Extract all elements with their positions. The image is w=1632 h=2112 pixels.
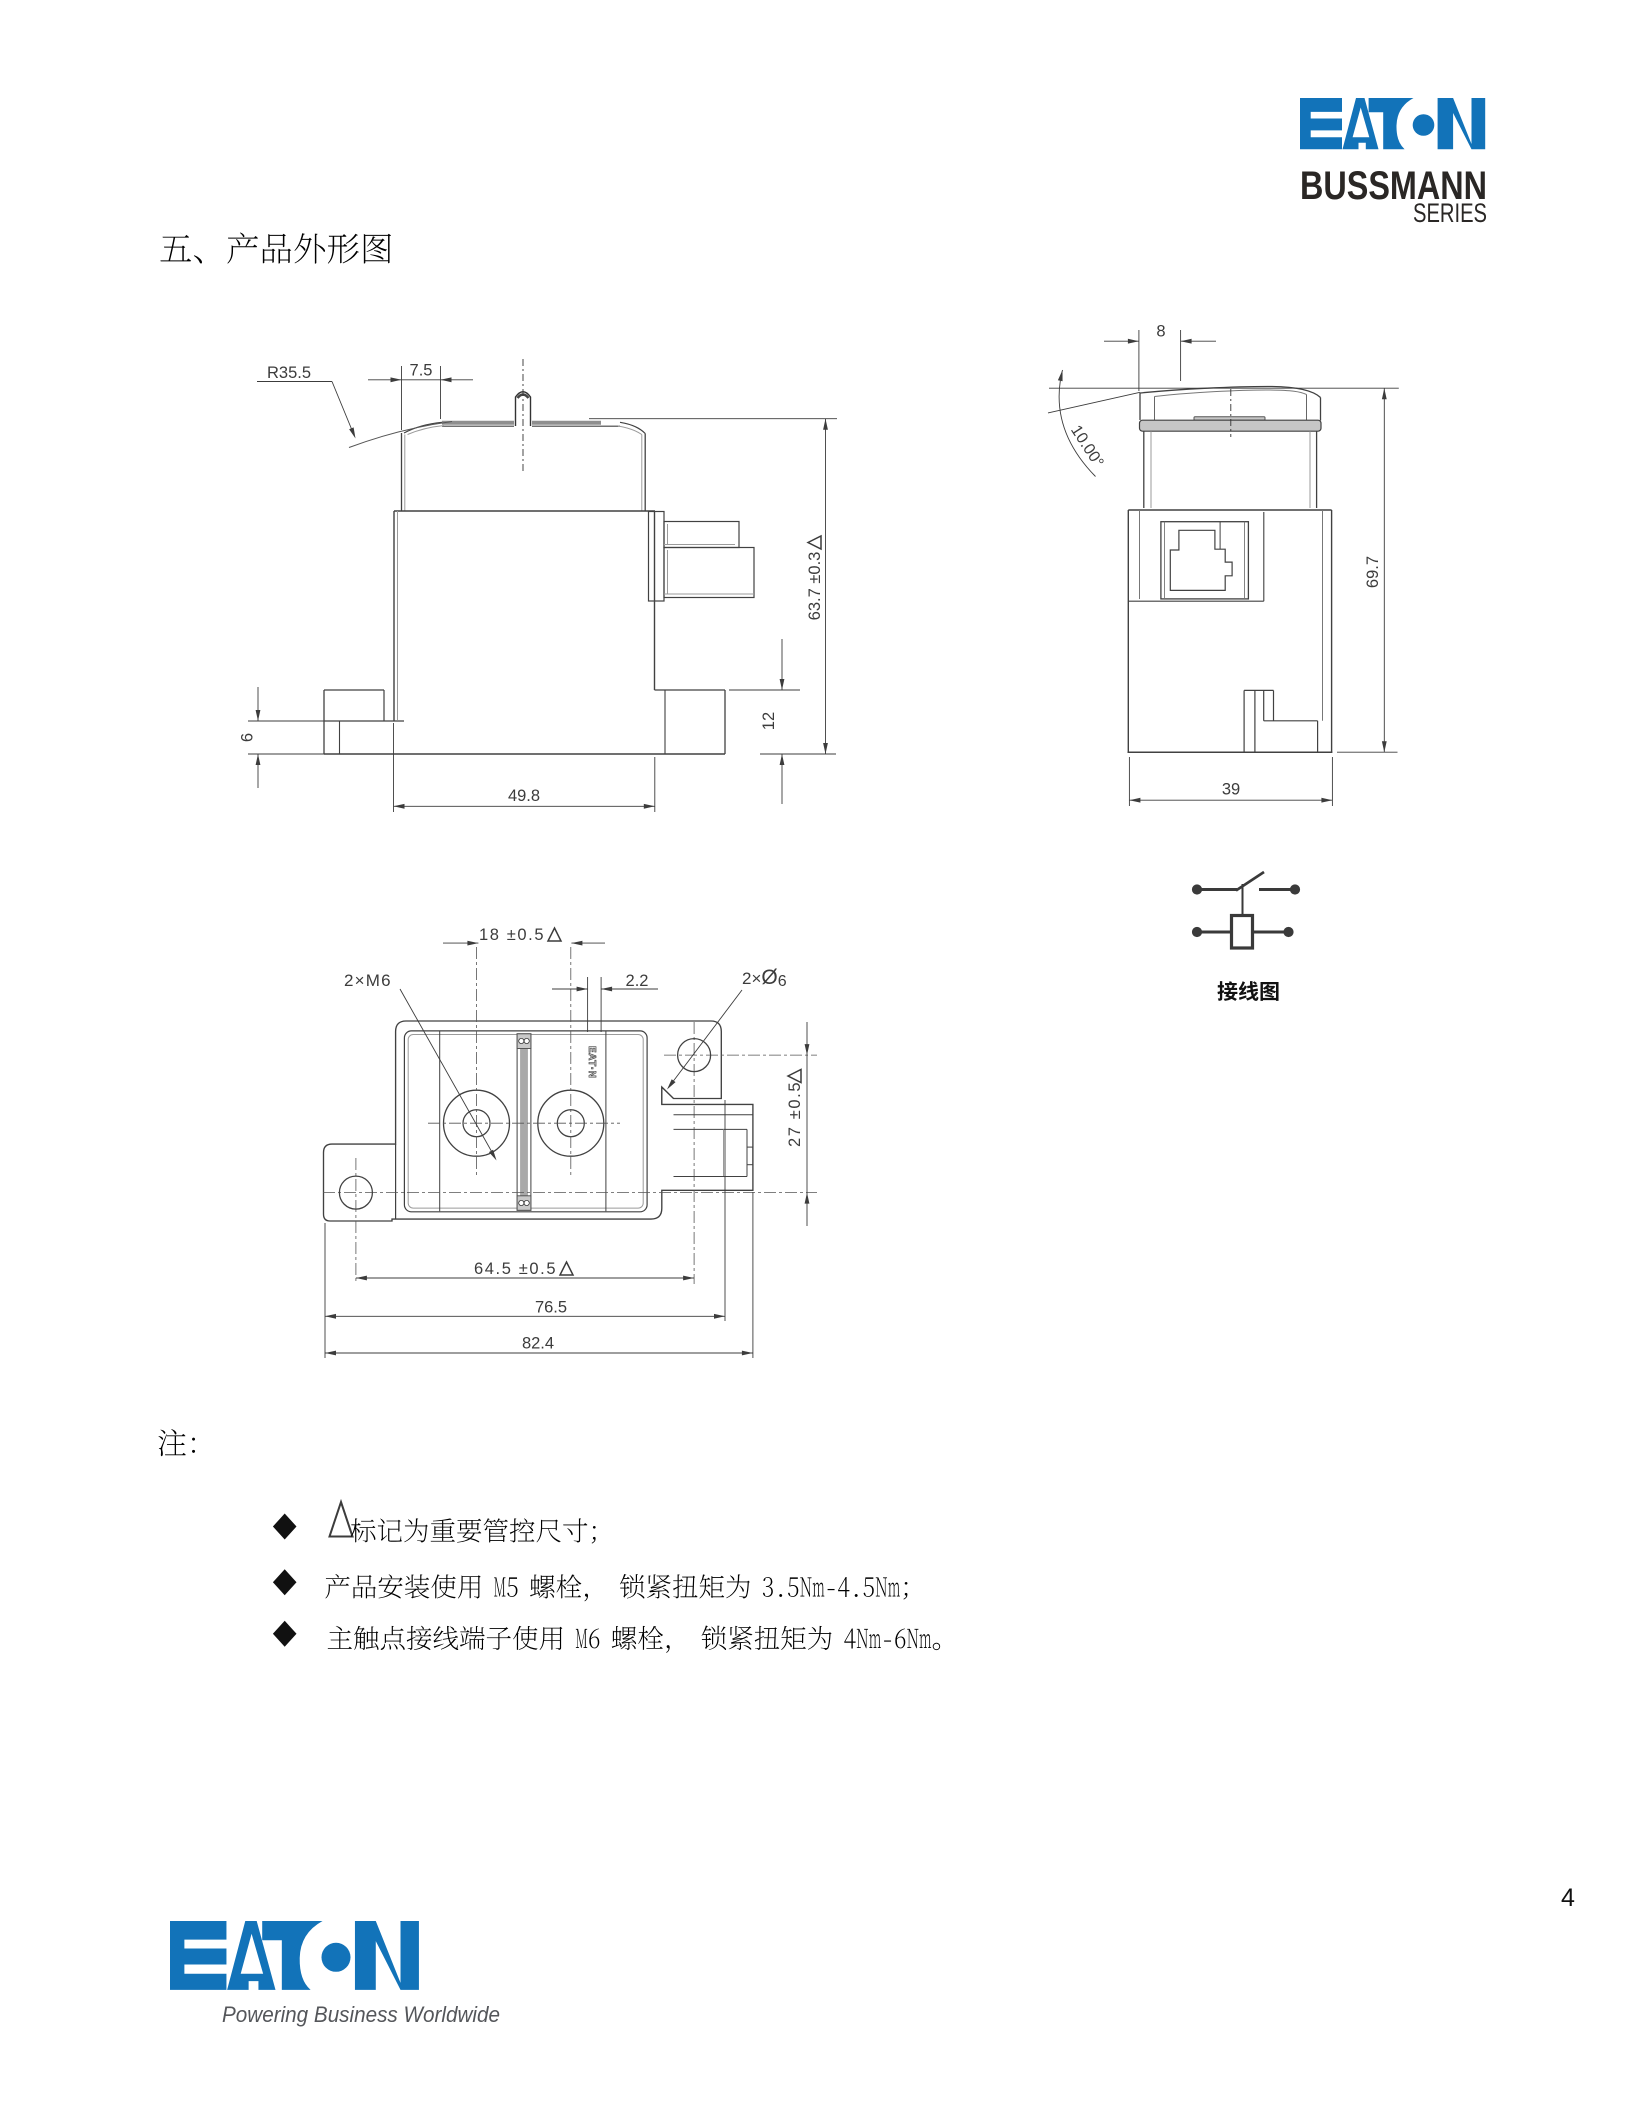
svg-text:64.5 ±0.5: 64.5 ±0.5 — [474, 1260, 557, 1278]
svg-text:63.7 ±0.3: 63.7 ±0.3 — [806, 552, 824, 621]
svg-text:8: 8 — [1156, 323, 1165, 341]
svg-text:69.7: 69.7 — [1364, 556, 1382, 588]
svg-text:7.5: 7.5 — [410, 362, 433, 380]
svg-text:2×Ø6: 2×Ø6 — [742, 966, 787, 990]
svg-text:4: 4 — [1561, 1884, 1575, 1912]
svg-text:82.4: 82.4 — [522, 1335, 554, 1353]
svg-text:49.8: 49.8 — [508, 787, 540, 805]
svg-text:76.5: 76.5 — [535, 1299, 567, 1317]
svg-text:27 ±0.5: 27 ±0.5 — [786, 1081, 804, 1147]
svg-text:18 ±0.5: 18 ±0.5 — [479, 926, 545, 944]
svg-text:12: 12 — [760, 712, 778, 730]
svg-text:6: 6 — [239, 733, 257, 742]
svg-text:SERIES: SERIES — [1413, 198, 1487, 228]
svg-text:2×M6: 2×M6 — [344, 971, 392, 990]
svg-text:R35.5: R35.5 — [267, 364, 311, 382]
svg-text:39: 39 — [1222, 781, 1240, 799]
svg-text:Powering Business Worldwide: Powering Business Worldwide — [222, 2002, 500, 2027]
svg-text:EAT·N: EAT·N — [586, 1046, 597, 1078]
svg-text:2.2: 2.2 — [626, 972, 649, 990]
